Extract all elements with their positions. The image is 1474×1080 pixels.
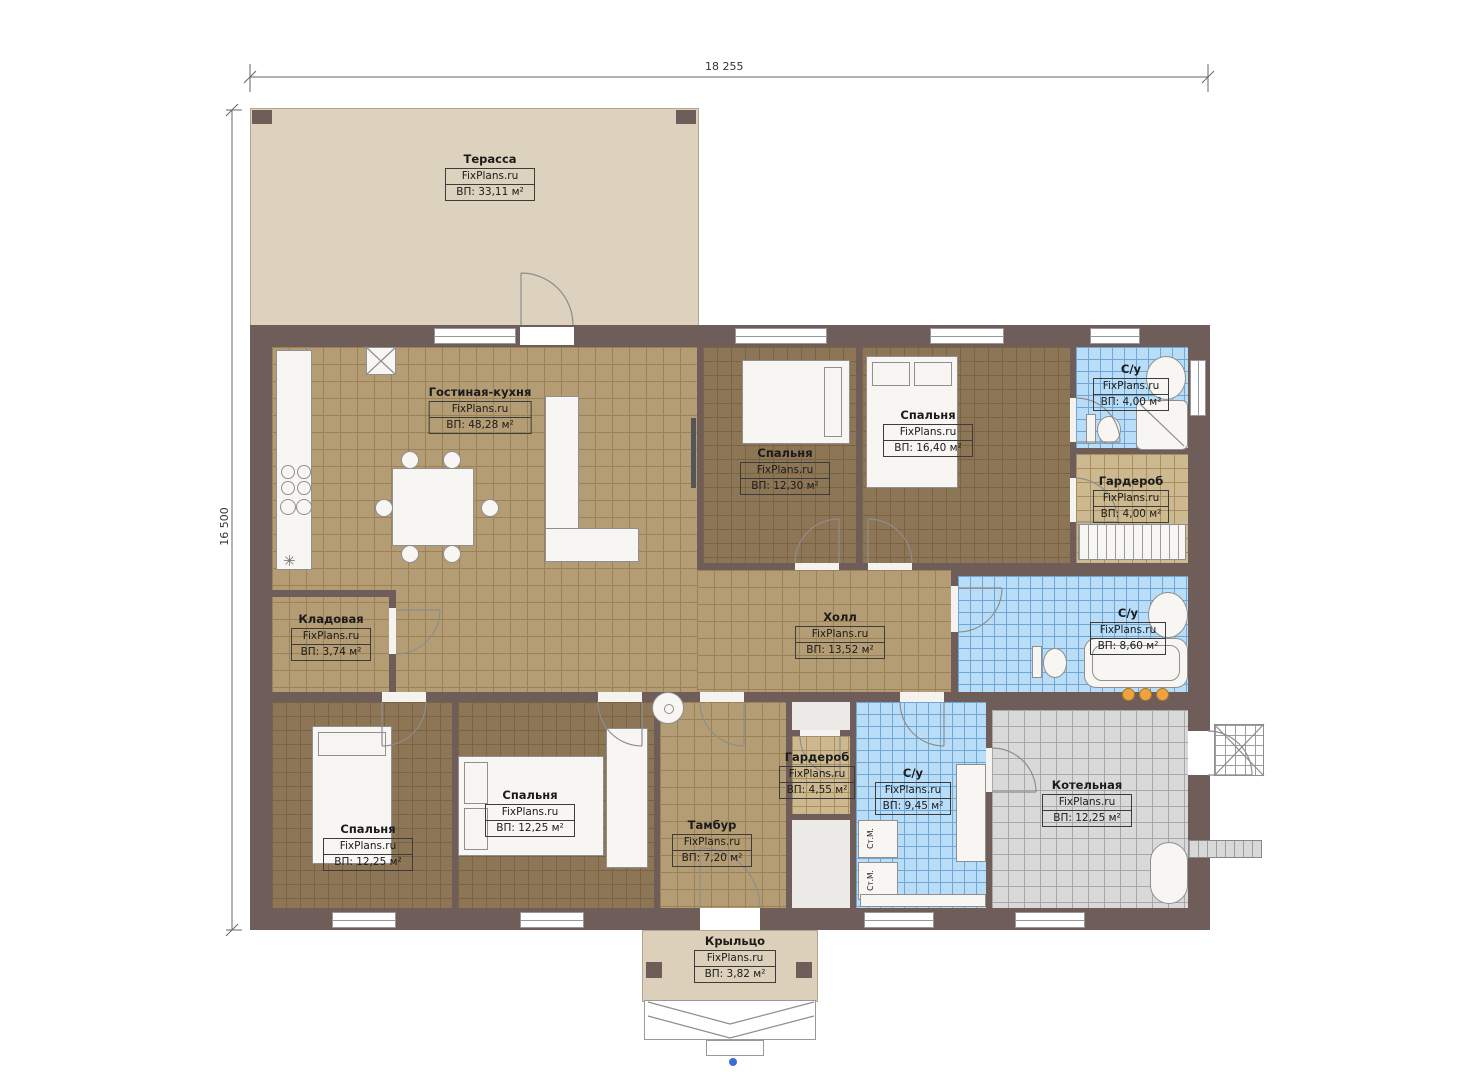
room-label-porch: Крыльцо FixPlans.ru ВП: 3,82 м² [694,934,776,983]
room-name: Спальня [883,408,973,422]
door-opening [868,563,912,570]
porch-post [646,962,662,978]
chair [443,545,461,563]
room-area: ВП: 13,52 м² [796,643,884,658]
washing-machine [858,820,898,858]
room-name: Спальня [485,788,575,802]
hook [1122,688,1135,701]
window [332,912,396,928]
room-label-bedroom-right: Спальня FixPlans.ru ВП: 16,40 м² [883,408,973,457]
bed-pillow [318,732,386,756]
bath-counter [860,894,986,907]
window [1090,328,1140,344]
room-label-living: Гостиная-кухня FixPlans.ru ВП: 48,28 м² [429,385,532,434]
toilet-tank [1032,646,1042,678]
stove-burner [297,481,311,495]
chair [481,499,499,517]
wardrobe-cabinet [606,728,648,868]
window [1015,912,1085,928]
room-name: С/у [875,766,951,780]
porch-platform [706,1040,764,1056]
dimension-height-label: 16 500 [218,507,231,546]
room-area: ВП: 12,25 м² [324,855,412,870]
room-label-bedroom-bc: Спальня FixPlans.ru ВП: 12,25 м² [485,788,575,837]
room-area: ВП: 33,11 м² [446,185,534,200]
brand-text: FixPlans.ru [876,783,950,799]
door-opening [900,692,944,702]
washing-machine-label: Ст.М. [866,828,875,849]
room-area: ВП: 9,45 м² [876,799,950,814]
shelving [1078,524,1186,560]
stove-burner [297,465,311,479]
hall-pedestal-center [664,704,674,714]
brand-text: FixPlans.ru [695,951,775,967]
chair [443,451,461,469]
brand-text: FixPlans.ru [446,169,534,185]
door-opening [951,586,958,632]
window [735,328,827,344]
chair [401,545,419,563]
toilet-bowl [1043,648,1067,678]
door-opening [389,608,396,654]
room-label-bedroom-bl: Спальня FixPlans.ru ВП: 12,25 м² [323,822,413,871]
brand-text: FixPlans.ru [430,402,531,418]
kitchen-sink-basin [280,499,296,515]
brand-text: FixPlans.ru [1094,379,1168,395]
toilet-tank [1086,414,1096,444]
door-opening [800,730,840,736]
room-label-wardrobe-bottom: Гардероб FixPlans.ru ВП: 4,55 м² [779,750,855,799]
chair [401,451,419,469]
room-label-terrace: Терасса FixPlans.ru ВП: 33,11 м² [445,152,535,201]
door-opening [598,692,642,702]
terrace-post [252,110,272,124]
brand-text: FixPlans.ru [741,463,829,479]
door-opening [795,563,839,570]
bed-pillow [914,362,952,386]
partition [1070,347,1076,570]
room-area: ВП: 16,40 м² [884,441,972,456]
dimension-width-label: 18 255 [705,60,744,73]
stove-burner [281,481,295,495]
vent-icon: ✳ [283,552,296,570]
tv [691,418,696,488]
door-opening [1188,731,1210,775]
room-name: С/у [1093,362,1169,376]
terrace-post [676,110,696,124]
room-label-bath-mid: С/у FixPlans.ru ВП: 8,60 м² [1090,606,1166,655]
kitchen-sink-basin [296,499,312,515]
boiler-tank [1150,842,1188,904]
partition [850,702,856,908]
door-opening [1070,478,1076,522]
partition [654,702,660,908]
toilet-bowl [1097,416,1121,444]
sofa [545,528,639,562]
closet-floor [792,820,850,908]
hook [1139,688,1152,701]
brand-text: FixPlans.ru [1043,795,1131,811]
room-name: Спальня [323,822,413,836]
terrace-door-opening [520,327,574,345]
door-opening [1070,398,1076,442]
room-area: ВП: 12,25 м² [1043,811,1131,826]
brand-text: FixPlans.ru [292,629,370,645]
hook [1156,688,1169,701]
kitchen-counter [276,350,312,570]
window [1190,360,1206,416]
room-area: ВП: 12,30 м² [741,479,829,494]
room-label-bath-bottom: С/у FixPlans.ru ВП: 9,45 м² [875,766,951,815]
partition [986,702,992,908]
room-area: ВП: 48,28 м² [430,418,531,433]
window [864,912,934,928]
bed-pillow [872,362,910,386]
partition [697,347,703,570]
room-label-bath-top: С/у FixPlans.ru ВП: 4,00 м² [1093,362,1169,411]
room-name: Холл [795,610,885,624]
brand-text: FixPlans.ru [486,805,574,821]
brand-text: FixPlans.ru [796,627,884,643]
room-area: ВП: 4,00 м² [1094,507,1168,522]
dining-table [392,468,474,546]
room-label-bedroom-top: Спальня FixPlans.ru ВП: 12,30 м² [740,446,830,495]
room-area: ВП: 3,74 м² [292,645,370,660]
room-area: ВП: 3,82 м² [695,967,775,982]
entry-mat [1214,724,1264,776]
room-name: С/у [1090,606,1166,620]
room-name: Кладовая [291,612,371,626]
room-label-boiler: Котельная FixPlans.ru ВП: 12,25 м² [1042,778,1132,827]
brand-text: FixPlans.ru [1091,623,1165,639]
porch-steps [644,1000,816,1040]
door-opening [700,908,760,930]
room-name: Спальня [740,446,830,460]
brand-text: FixPlans.ru [1094,491,1168,507]
room-name: Котельная [1042,778,1132,792]
chair [375,499,393,517]
room-label-hall: Холл FixPlans.ru ВП: 13,52 м² [795,610,885,659]
brand-text: FixPlans.ru [780,767,854,783]
door-opening [986,748,992,792]
room-name: Гардероб [1093,474,1169,488]
brand-text: FixPlans.ru [324,839,412,855]
door-opening [382,692,426,702]
tambour-floor [660,702,786,908]
window [520,912,584,928]
window [434,328,516,344]
room-label-wardrobe-top: Гардероб FixPlans.ru ВП: 4,00 м² [1093,474,1169,523]
shower-cabin [956,764,986,862]
terrace-floor [250,108,699,327]
door-opening [700,692,744,702]
room-name: Терасса [445,152,535,166]
vestibule-floor [792,702,850,730]
partition [272,590,396,597]
room-name: Гардероб [779,750,855,764]
partition [703,563,1188,570]
partition [856,347,862,570]
washing-machine-label: Ст.М. [866,870,875,891]
porch-post [796,962,812,978]
brand-text: FixPlans.ru [884,425,972,441]
room-name: Тамбур [672,818,752,832]
room-area: ВП: 12,25 м² [486,821,574,836]
room-label-pantry: Кладовая FixPlans.ru ВП: 3,74 м² [291,612,371,661]
floor-plan-canvas: ✳ Ст.М. Ст.М. [0,0,1474,1080]
partition [792,814,850,820]
porch-marker [729,1058,737,1066]
radiator [1188,840,1262,858]
room-area: ВП: 8,60 м² [1091,639,1165,654]
partition [958,570,1188,576]
window [930,328,1004,344]
room-area: ВП: 4,00 м² [1094,395,1168,410]
bed-pillow [824,367,842,437]
room-name: Гостиная-кухня [429,385,532,399]
room-area: ВП: 7,20 м² [673,851,751,866]
room-name: Крыльцо [694,934,776,948]
fridge [366,347,396,375]
stove-burner [281,465,295,479]
brand-text: FixPlans.ru [673,835,751,851]
room-label-tambour: Тамбур FixPlans.ru ВП: 7,20 м² [672,818,752,867]
room-area: ВП: 4,55 м² [780,783,854,798]
